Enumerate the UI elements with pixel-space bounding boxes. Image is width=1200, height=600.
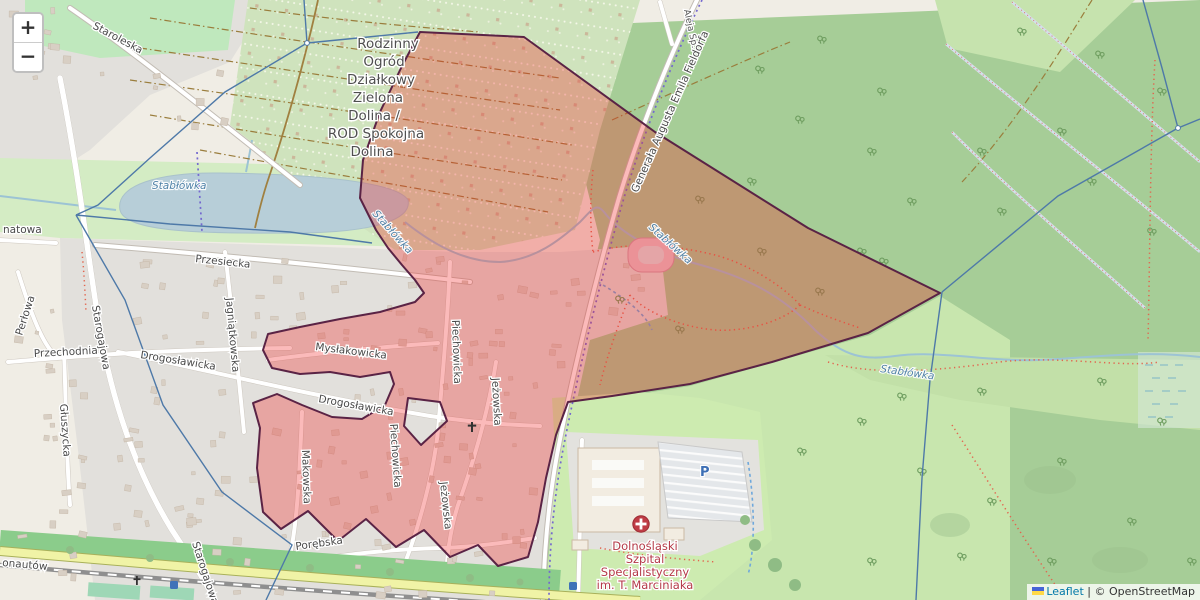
zoom-in-button[interactable]: + <box>14 14 42 42</box>
bus-stop-icon-2[interactable] <box>569 582 577 590</box>
street-label-jezowska: Jeżowska <box>489 377 504 426</box>
water-label-pond: Stabłówka <box>152 180 206 192</box>
svg-text:ROD Spokojna: ROD Spokojna <box>328 126 424 142</box>
svg-text:Działkowy: Działkowy <box>347 72 415 88</box>
parking-label: P <box>700 465 710 480</box>
hospital-icon[interactable] <box>633 516 649 532</box>
street-label-makowska: Makowska <box>299 450 313 504</box>
map-canvas: Staroleska natowa Perłowa Przechodnia Gł… <box>0 0 1200 600</box>
street-label-natowa: natowa <box>3 224 42 236</box>
leaflet-map[interactable]: Staroleska natowa Perłowa Przechodnia Gł… <box>0 0 1200 600</box>
leaflet-link[interactable]: Leaflet <box>1046 585 1083 598</box>
svg-text:Zielona: Zielona <box>353 90 403 106</box>
svg-text:Dolnośląski: Dolnośląski <box>612 539 678 553</box>
zoom-out-button[interactable]: − <box>14 42 42 71</box>
svg-text:Specjalistyczny: Specjalistyczny <box>601 565 690 579</box>
zoom-control: + − <box>12 12 44 73</box>
attribution-bar: Leaflet | © OpenStreetMap <box>1027 584 1200 600</box>
bus-stop-icon[interactable] <box>170 581 178 589</box>
svg-text:Dolina /: Dolina / <box>348 108 400 124</box>
svg-text:Rodzinny: Rodzinny <box>357 36 419 52</box>
attribution-separator: | <box>1087 585 1091 598</box>
parking-lot <box>658 442 752 522</box>
svg-text:Ogród: Ogród <box>363 54 404 70</box>
svg-text:im. T. Marciniaka: im. T. Marciniaka <box>597 578 694 592</box>
ukraine-flag-icon <box>1032 587 1044 595</box>
svg-text:Dolina: Dolina <box>351 144 394 160</box>
osm-link[interactable]: © OpenStreetMap <box>1094 585 1195 598</box>
street-label-piechowicka: Piechowicka <box>449 320 463 384</box>
svg-text:Szpital: Szpital <box>626 552 665 566</box>
